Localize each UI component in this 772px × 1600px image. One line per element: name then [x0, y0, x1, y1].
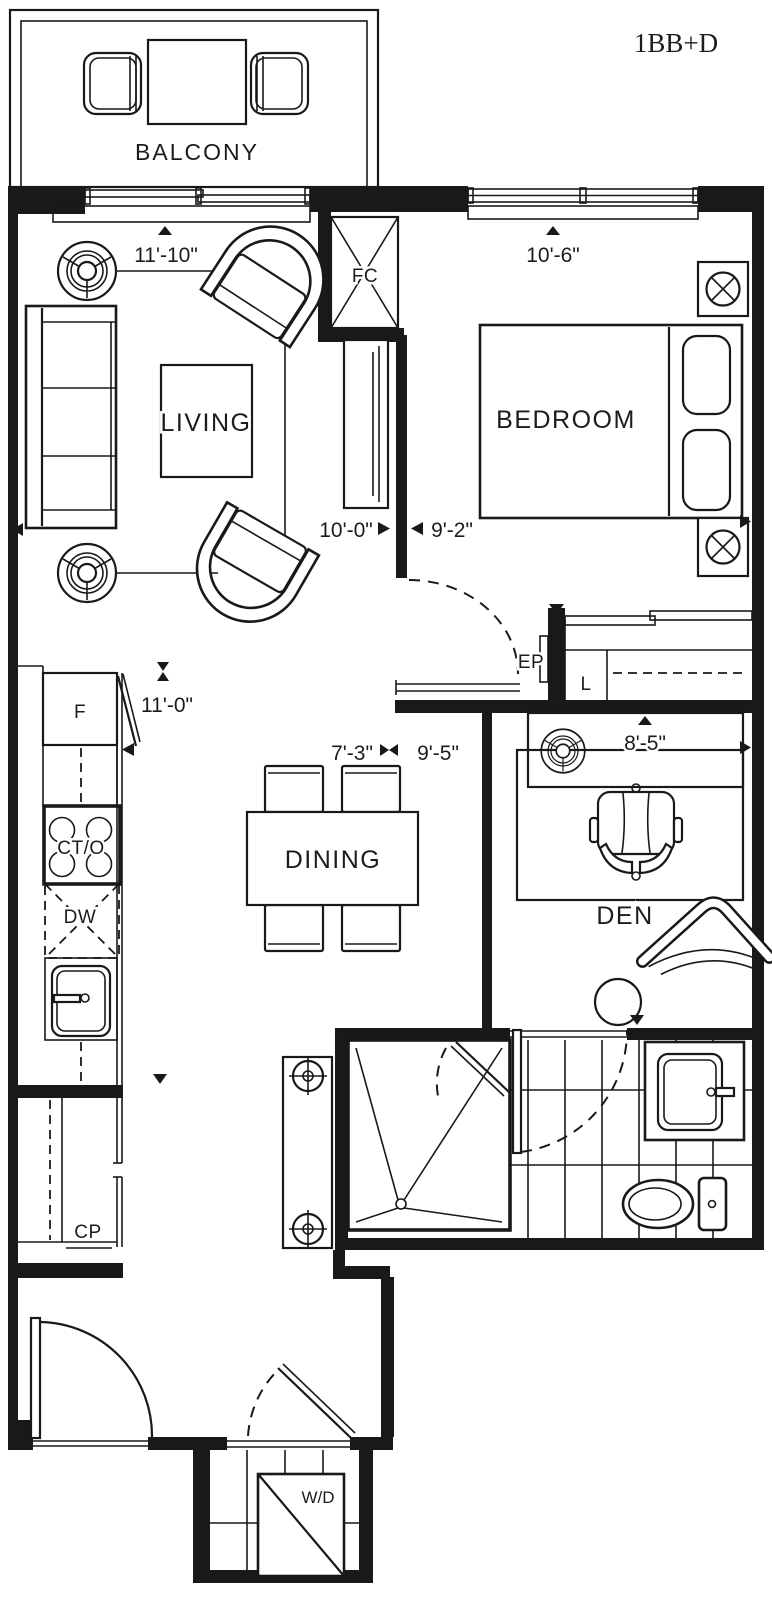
- right-exterior-wall: [752, 186, 764, 1250]
- fridge: F: [43, 673, 140, 746]
- faucet-icon: [716, 1088, 734, 1096]
- sofa: [26, 306, 116, 528]
- bathroom-bottom-wall: [335, 1238, 752, 1250]
- ep-label: EP: [518, 652, 544, 673]
- office-chair: [590, 784, 682, 880]
- balcony-label: BALCONY: [135, 139, 259, 165]
- bathroom-door-leaf: [513, 1030, 521, 1153]
- shower-drain: [396, 1199, 406, 1209]
- bedroom-label: BEDROOM: [496, 406, 636, 434]
- unit-type-title: 1BB+D: [634, 28, 718, 58]
- left-exterior-wall: [8, 186, 18, 1450]
- den: DEN: [517, 713, 769, 1025]
- dim-bedroom-depth: 9'-2": [431, 519, 473, 542]
- kitchen-sink: [45, 958, 117, 1040]
- bedroom-door-swing: [409, 580, 518, 674]
- cooktop-oven: CT/O: [44, 806, 120, 884]
- ceiling-light-icon: [698, 262, 748, 316]
- mid-wall: [395, 700, 764, 713]
- den-label: DEN: [596, 902, 653, 930]
- plumbing-chase: [283, 1057, 332, 1248]
- media-console: [344, 340, 388, 508]
- floorplan-1bbd: BALCONY: [0, 0, 772, 1600]
- floorplan-drawing: BALCONY: [0, 0, 772, 1600]
- washer-dryer: W/D: [258, 1474, 344, 1576]
- electrical-panel: EP: [518, 636, 548, 682]
- corridor-bulkhead: [396, 680, 520, 695]
- bedroom-wall-stub: [396, 335, 407, 578]
- living-label: LIVING: [161, 409, 252, 437]
- toilet: [623, 1178, 726, 1230]
- dim-dining-depth: 9'-5": [417, 742, 459, 765]
- bathroom-left-wall: [335, 1028, 348, 1250]
- kitchen: F CT/O DW: [18, 666, 140, 1085]
- bedroom-closet: L: [565, 611, 752, 700]
- toilet-tank: [699, 1178, 726, 1230]
- fan-coil-closet: FC: [331, 217, 398, 328]
- vanity-sink: [645, 1042, 744, 1140]
- balcony-chair-left: [84, 53, 141, 114]
- shower: [348, 1040, 510, 1230]
- ep-wall-stub: [548, 608, 565, 707]
- linen-label: L: [580, 674, 591, 695]
- fc-label: FC: [352, 266, 378, 287]
- coat-pantry-closet: CP: [18, 1098, 122, 1248]
- lounge-chair: [642, 896, 769, 1022]
- pillow: [683, 336, 730, 414]
- wd-label: W/D: [301, 1488, 334, 1507]
- entry-door-swing: [41, 1322, 152, 1437]
- side-table-bottom: [58, 544, 116, 602]
- entry-door-leaf: [31, 1318, 40, 1438]
- dim-den-width: 8'-5": [624, 732, 666, 755]
- pillow: [683, 430, 730, 510]
- laundry-closet: W/D: [210, 1364, 359, 1576]
- laundry-door-swing: [248, 1369, 279, 1436]
- desk-lamp: [541, 729, 585, 773]
- faucet-icon: [54, 995, 80, 1002]
- bedroom-window: [468, 188, 698, 219]
- dim-kitchen-run: 11'-0": [141, 694, 193, 717]
- side-table-top: [58, 242, 116, 300]
- bathroom-door-swing: [521, 1030, 627, 1152]
- laundry-door: [248, 1364, 355, 1438]
- living-room: LIVING FC: [26, 206, 398, 641]
- dim-living-depth: 10'-0": [319, 519, 373, 542]
- den-left-wall: [482, 713, 492, 1028]
- dining-label: DINING: [285, 846, 382, 874]
- dim-living-width: 11'-10": [134, 244, 198, 267]
- bathroom: [283, 1030, 752, 1248]
- dishwasher-label: DW: [64, 907, 97, 928]
- balcony-chair-right: [251, 53, 308, 114]
- balcony-sliding-door: [53, 188, 310, 222]
- dim-bedroom-width: 10'-6": [526, 244, 580, 267]
- balcony-table: [148, 40, 246, 124]
- dishwasher: DW: [45, 884, 119, 958]
- cooktop-label: CT/O: [57, 838, 104, 859]
- toilet-bowl: [623, 1180, 693, 1228]
- bedroom: BEDROOM L EP: [396, 262, 752, 700]
- dining-area: DINING: [247, 766, 418, 951]
- cp-label: CP: [74, 1222, 101, 1243]
- armchair-bottom: [178, 502, 319, 641]
- balcony: BALCONY: [10, 10, 378, 187]
- dim-dining-width: 7'-3": [331, 742, 373, 765]
- entry: [31, 1318, 152, 1446]
- fridge-label: F: [74, 702, 86, 723]
